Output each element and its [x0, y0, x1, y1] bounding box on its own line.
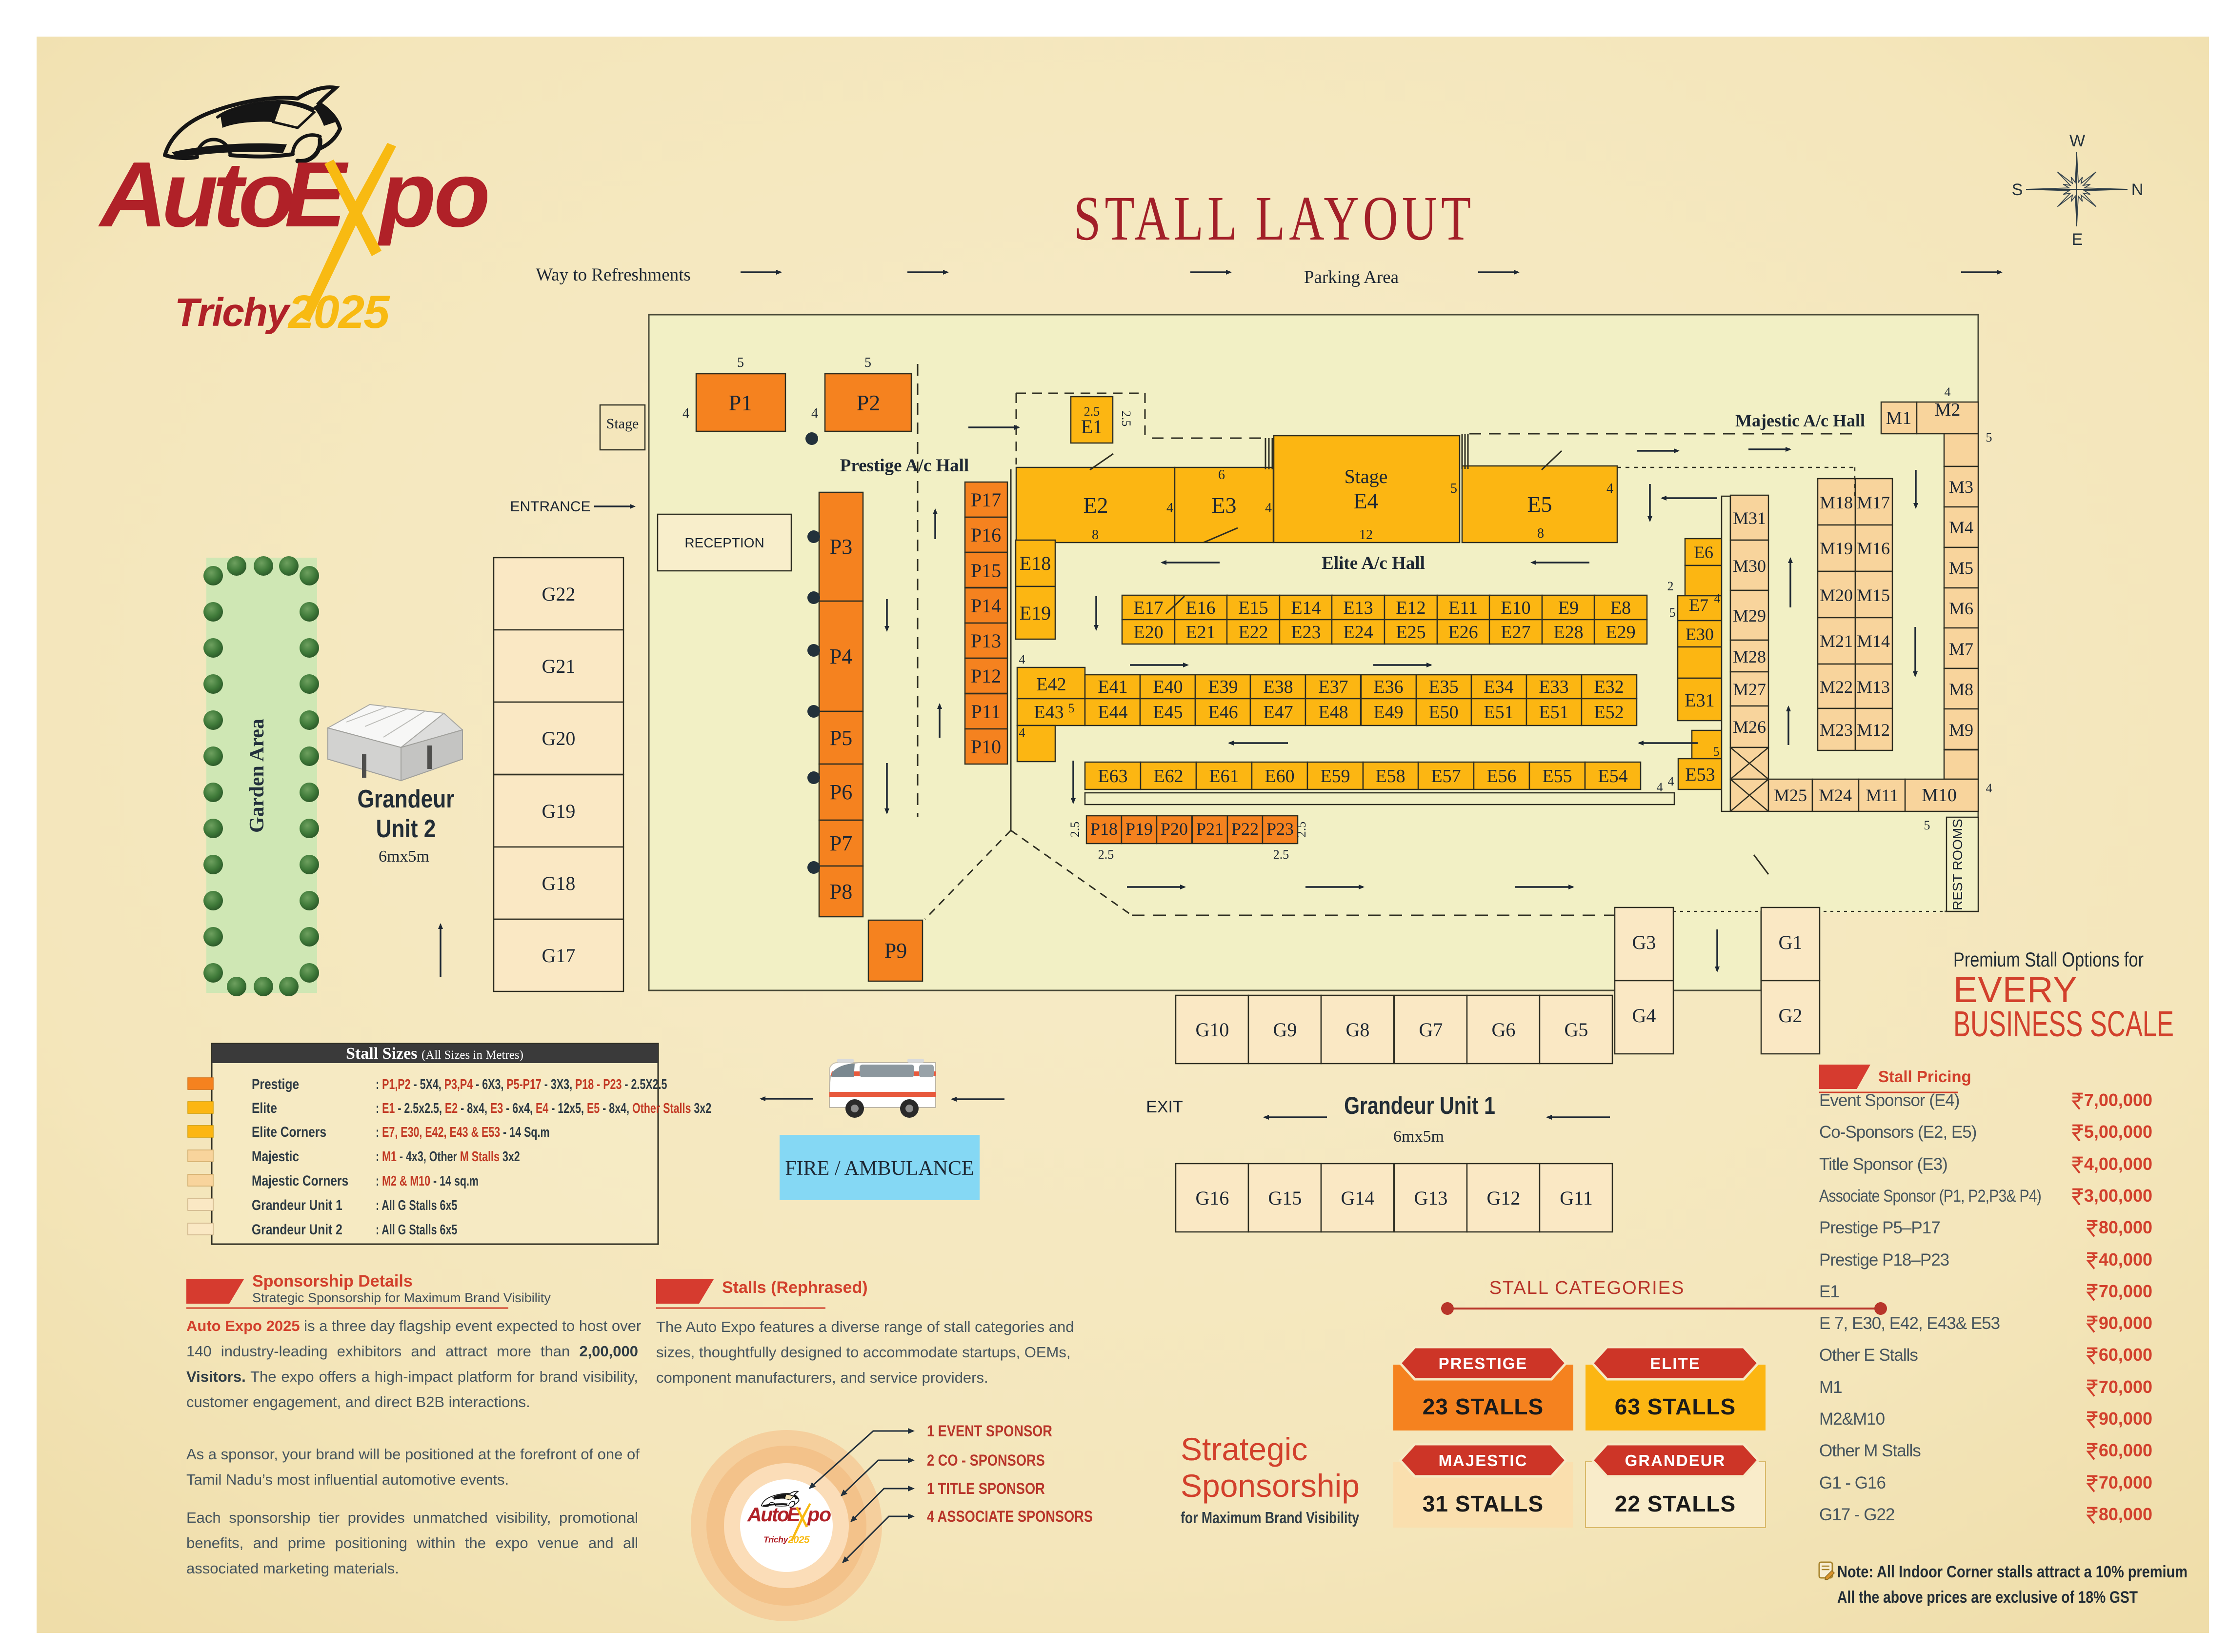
- svg-text:Strategic: Strategic: [1181, 1431, 1307, 1467]
- svg-text:2025: 2025: [287, 286, 390, 338]
- svg-text:Other M Stalls: Other M Stalls: [1819, 1441, 1921, 1460]
- svg-text:5: 5: [864, 355, 871, 370]
- svg-text:80,000: 80,000: [2099, 1217, 2152, 1237]
- svg-text:Elite Corners: Elite Corners: [252, 1124, 326, 1140]
- svg-text:G17: G17: [542, 945, 576, 967]
- svg-text:E 7, E30, E42, E43& E53: E 7, E30, E42, E43& E53: [1819, 1314, 2000, 1333]
- svg-text:M30: M30: [1733, 556, 1766, 576]
- svg-text:P1: P1: [729, 390, 753, 415]
- svg-text:4: 4: [682, 406, 689, 421]
- svg-text:3,00,000: 3,00,000: [2084, 1186, 2152, 1206]
- svg-text:Majestic Corners: Majestic Corners: [252, 1172, 348, 1189]
- svg-text:4: 4: [1265, 501, 1272, 516]
- svg-text:Note: All Indoor Corner stalls: Note: All Indoor Corner stalls attract a…: [1837, 1563, 2188, 1581]
- svg-text:M8: M8: [1949, 680, 1973, 699]
- svg-text:G9: G9: [1273, 1019, 1297, 1041]
- svg-text:M29: M29: [1733, 606, 1766, 625]
- svg-text:P10: P10: [971, 736, 1001, 758]
- svg-text:: M1 - 4x3, Other M Stalls 3x: : M1 - 4x3, Other M Stalls 3x2: [376, 1149, 520, 1165]
- svg-text:90,000: 90,000: [2099, 1409, 2152, 1429]
- svg-text:E57: E57: [1431, 766, 1461, 786]
- svg-text:EXIT: EXIT: [1146, 1098, 1183, 1116]
- svg-text:P11: P11: [971, 701, 1001, 723]
- svg-text:90,000: 90,000: [2099, 1313, 2152, 1333]
- svg-text:ELITE: ELITE: [1650, 1354, 1701, 1372]
- svg-text:70,000: 70,000: [2099, 1472, 2152, 1492]
- svg-text:G3: G3: [1632, 931, 1656, 953]
- svg-text:E20: E20: [1133, 622, 1163, 643]
- svg-text:Event Sponsor (E4): Event Sponsor (E4): [1819, 1091, 1959, 1110]
- svg-text:M21: M21: [1820, 631, 1853, 651]
- svg-text:Stall Pricing: Stall Pricing: [1878, 1068, 1971, 1086]
- svg-text:6mx5m: 6mx5m: [379, 847, 429, 866]
- svg-text:M25: M25: [1774, 786, 1807, 805]
- svg-text:E36: E36: [1373, 677, 1403, 697]
- svg-text:1 EVENT SPONSOR: 1 EVENT SPONSOR: [927, 1423, 1052, 1440]
- svg-text:1 TITLE SPONSOR: 1 TITLE SPONSOR: [927, 1480, 1045, 1498]
- svg-text:2.5: 2.5: [1294, 822, 1308, 838]
- svg-text:E18: E18: [1020, 552, 1051, 574]
- svg-text:E27: E27: [1501, 622, 1530, 643]
- svg-text:M18: M18: [1820, 493, 1853, 512]
- svg-text:2.5: 2.5: [1098, 847, 1114, 862]
- svg-text:Other E Stalls: Other E Stalls: [1819, 1346, 1918, 1365]
- svg-text:E14: E14: [1291, 598, 1321, 618]
- svg-text:M24: M24: [1819, 786, 1852, 805]
- svg-text:E43: E43: [1034, 702, 1064, 723]
- svg-text:G16: G16: [1196, 1187, 1229, 1209]
- svg-text:G17 - G22: G17 - G22: [1819, 1505, 1894, 1524]
- svg-text:70,000: 70,000: [2099, 1281, 2152, 1301]
- svg-text:M31: M31: [1733, 508, 1766, 528]
- svg-text:Sponsorship: Sponsorship: [1181, 1468, 1360, 1504]
- svg-text:G13: G13: [1414, 1187, 1448, 1209]
- svg-text:G18: G18: [542, 872, 576, 894]
- svg-text:E34: E34: [1484, 677, 1513, 697]
- svg-text:Prestige P5–P17: Prestige P5–P17: [1819, 1218, 1940, 1237]
- svg-text:P8: P8: [830, 880, 852, 904]
- svg-text:E55: E55: [1542, 766, 1572, 786]
- svg-text:E54: E54: [1598, 766, 1627, 786]
- svg-text:Associate Sponsor (P1, P2,P3&: Associate Sponsor (P1, P2,P3& P4): [1819, 1187, 2041, 1206]
- svg-text:E16: E16: [1185, 598, 1215, 618]
- svg-text:G14: G14: [1341, 1187, 1375, 1209]
- svg-text:E22: E22: [1238, 622, 1268, 643]
- svg-text:G11: G11: [1560, 1187, 1592, 1209]
- svg-text:G6: G6: [1492, 1019, 1516, 1041]
- svg-text:E17: E17: [1133, 598, 1163, 618]
- svg-text:M2: M2: [1935, 400, 1961, 420]
- svg-text:Prestige: Prestige: [252, 1076, 299, 1092]
- svg-text:Grandeur Unit 1: Grandeur Unit 1: [1344, 1092, 1495, 1119]
- svg-text:FIRE / AMBULANCE: FIRE / AMBULANCE: [785, 1157, 974, 1180]
- svg-text:P16: P16: [971, 524, 1001, 546]
- svg-text:S: S: [2012, 181, 2023, 199]
- svg-text:2.5: 2.5: [1068, 822, 1082, 838]
- svg-text:Stage: Stage: [1345, 465, 1388, 487]
- svg-text:E42: E42: [1036, 674, 1066, 695]
- svg-text:E21: E21: [1185, 622, 1215, 643]
- svg-text:E58: E58: [1375, 766, 1405, 786]
- svg-text:P2: P2: [857, 390, 881, 415]
- svg-text:Unit 2: Unit 2: [376, 815, 436, 843]
- svg-text:M11: M11: [1866, 786, 1899, 805]
- svg-text:7,00,000: 7,00,000: [2084, 1090, 2152, 1110]
- svg-text:E33: E33: [1539, 677, 1568, 697]
- svg-text:5: 5: [1068, 701, 1075, 715]
- svg-text:Grandeur Unit 2: Grandeur Unit 2: [252, 1221, 342, 1238]
- svg-text:4: 4: [1986, 781, 1992, 795]
- svg-text:Grandeur Unit 1: Grandeur Unit 1: [252, 1197, 342, 1213]
- svg-text:4,00,000: 4,00,000: [2084, 1154, 2152, 1174]
- svg-text:8: 8: [1537, 526, 1544, 541]
- svg-text:P7: P7: [830, 831, 852, 855]
- svg-text:M4: M4: [1949, 518, 1973, 537]
- svg-text:40,000: 40,000: [2099, 1249, 2152, 1269]
- svg-text:E35: E35: [1428, 677, 1458, 697]
- svg-text:BUSINESS SCALE: BUSINESS SCALE: [1953, 1004, 2174, 1044]
- svg-text:E11: E11: [1448, 598, 1478, 618]
- svg-text:G2: G2: [1779, 1005, 1803, 1027]
- svg-text:N: N: [2131, 181, 2144, 199]
- svg-text:All the above prices are exclu: All the above prices are exclusive of 18…: [1837, 1588, 2138, 1607]
- svg-text:E51: E51: [1539, 702, 1568, 723]
- svg-text:: All G Stalls 6x5: : All G Stalls 6x5: [376, 1198, 457, 1213]
- svg-text:G1: G1: [1779, 931, 1803, 953]
- svg-text:M28: M28: [1733, 647, 1766, 666]
- svg-text:23 STALLS: 23 STALLS: [1423, 1394, 1544, 1419]
- svg-text:P12: P12: [971, 665, 1001, 687]
- svg-text:E41: E41: [1098, 677, 1127, 697]
- svg-text:P20: P20: [1161, 819, 1188, 839]
- svg-text:M9: M9: [1949, 720, 1973, 740]
- svg-text:Way to Refreshments: Way to Refreshments: [536, 265, 691, 285]
- svg-text:M1: M1: [1819, 1378, 1842, 1397]
- svg-text:Premium Stall Options for: Premium Stall Options for: [1953, 948, 2144, 971]
- svg-text:G1 - G16: G1 - G16: [1819, 1473, 1886, 1492]
- svg-text:STALL CATEGORIES: STALL CATEGORIES: [1489, 1278, 1685, 1298]
- svg-text:for Maximum Brand Visibility: for Maximum Brand Visibility: [1181, 1509, 1360, 1527]
- svg-text:60,000: 60,000: [2099, 1345, 2152, 1365]
- svg-text:: M2 & M10 - 14 sq.m: : M2 & M10 - 14 sq.m: [376, 1173, 479, 1189]
- svg-text:M26: M26: [1733, 717, 1766, 737]
- svg-text:E30: E30: [1686, 625, 1714, 644]
- svg-text:E: E: [284, 143, 349, 246]
- svg-text:6mx5m: 6mx5m: [1393, 1128, 1444, 1146]
- svg-text:P3: P3: [830, 535, 852, 559]
- svg-text:: E1 - 2.5x2.5, E2 - 8x4, E3: : E1 - 2.5x2.5, E2 - 8x4, E3 - 6x4, E4 -…: [376, 1101, 711, 1116]
- svg-text:E45: E45: [1153, 702, 1183, 723]
- svg-text:E25: E25: [1396, 622, 1425, 643]
- svg-text:E60: E60: [1265, 766, 1294, 786]
- svg-text:M1: M1: [1886, 408, 1912, 428]
- svg-text:4: 4: [811, 406, 818, 421]
- svg-text:E46: E46: [1208, 702, 1238, 723]
- svg-text:E40: E40: [1153, 677, 1183, 697]
- svg-text:E1: E1: [1081, 416, 1103, 438]
- svg-text:: P1,P2 - 5X4, P3,P4 - 6X3, P: : P1,P2 - 5X4, P3,P4 - 6X3, P5-P17 - 3X3…: [376, 1077, 667, 1092]
- svg-text:M7: M7: [1949, 639, 1973, 659]
- svg-text:5: 5: [1713, 745, 1720, 759]
- svg-text:E4: E4: [1353, 488, 1378, 513]
- svg-text:4: 4: [1606, 481, 1613, 496]
- svg-text:E38: E38: [1263, 677, 1293, 697]
- svg-text:E37: E37: [1318, 677, 1348, 697]
- svg-text:M14: M14: [1857, 631, 1890, 651]
- svg-text:E5: E5: [1527, 492, 1552, 517]
- svg-text:Elite A/c Hall: Elite A/c Hall: [1322, 553, 1425, 573]
- svg-text:P14: P14: [971, 595, 1001, 617]
- svg-text:70,000: 70,000: [2099, 1377, 2152, 1397]
- svg-text:G8: G8: [1346, 1019, 1370, 1041]
- svg-text:M20: M20: [1820, 585, 1853, 605]
- svg-text:P15: P15: [971, 560, 1001, 582]
- svg-text:5: 5: [1669, 605, 1676, 620]
- svg-text:P19: P19: [1125, 819, 1153, 839]
- svg-text:E63: E63: [1098, 766, 1127, 786]
- svg-text:Stalls (Rephrased): Stalls (Rephrased): [722, 1278, 868, 1297]
- svg-text:P6: P6: [830, 780, 852, 804]
- svg-text:E53: E53: [1685, 765, 1715, 785]
- svg-text:60,000: 60,000: [2099, 1440, 2152, 1460]
- svg-text:Parking Area: Parking Area: [1304, 267, 1399, 287]
- svg-text:Sponsorship Details: Sponsorship Details: [252, 1272, 413, 1290]
- svg-text:2.5: 2.5: [1119, 411, 1133, 427]
- svg-text:M22: M22: [1820, 677, 1853, 697]
- svg-text:P13: P13: [971, 630, 1001, 652]
- svg-text:12: 12: [1359, 527, 1373, 543]
- svg-text:E32: E32: [1594, 677, 1624, 697]
- svg-text:Auto: Auto: [98, 143, 292, 246]
- svg-text:RECEPTION: RECEPTION: [684, 535, 764, 550]
- svg-text:G4: G4: [1632, 1005, 1656, 1027]
- svg-text:M23: M23: [1820, 720, 1853, 740]
- svg-text:M17: M17: [1857, 493, 1890, 512]
- svg-text:Strategic Sponsorship for Maxi: Strategic Sponsorship for Maximum Brand …: [252, 1290, 551, 1305]
- svg-text:G10: G10: [1196, 1019, 1229, 1041]
- svg-text:E31: E31: [1685, 690, 1714, 711]
- svg-text:M3: M3: [1949, 477, 1973, 497]
- svg-text:E15: E15: [1238, 598, 1268, 618]
- svg-text:5: 5: [737, 355, 744, 370]
- svg-text:STALL LAYOUT: STALL LAYOUT: [1074, 184, 1475, 254]
- svg-text:Elite: Elite: [252, 1100, 277, 1116]
- svg-text:: E7, E30, E42, E43 & E53 - 1: : E7, E30, E42, E43 & E53 - 14 Sq.m: [376, 1125, 550, 1140]
- svg-text:ENTRANCE: ENTRANCE: [510, 499, 590, 515]
- svg-text:G7: G7: [1419, 1019, 1443, 1041]
- svg-text:E3: E3: [1211, 493, 1236, 518]
- svg-text:5,00,000: 5,00,000: [2084, 1122, 2152, 1142]
- svg-text:G22: G22: [542, 583, 576, 605]
- svg-text:5: 5: [1924, 818, 1930, 832]
- svg-text:P22: P22: [1231, 819, 1259, 839]
- svg-text:Co-Sponsors (E2, E5): Co-Sponsors (E2, E5): [1819, 1123, 1976, 1142]
- svg-text:E61: E61: [1209, 766, 1239, 786]
- svg-text:E13: E13: [1343, 598, 1373, 618]
- svg-text:Grandeur: Grandeur: [358, 785, 455, 813]
- svg-text:P9: P9: [884, 939, 907, 963]
- svg-text:MAJESTIC: MAJESTIC: [1439, 1451, 1528, 1470]
- svg-text:4: 4: [1166, 501, 1173, 516]
- svg-text:4 ASSOCIATE SPONSORS: 4 ASSOCIATE SPONSORS: [927, 1508, 1093, 1526]
- svg-text:E23: E23: [1291, 622, 1321, 643]
- svg-text:E59: E59: [1320, 766, 1350, 786]
- svg-text:2.5: 2.5: [1084, 404, 1100, 419]
- svg-text:E9: E9: [1558, 598, 1579, 618]
- svg-text:P4: P4: [830, 645, 852, 668]
- svg-text:2.5: 2.5: [1273, 847, 1289, 862]
- svg-text:G20: G20: [542, 727, 576, 749]
- svg-text:E6: E6: [1694, 543, 1713, 562]
- svg-text:G12: G12: [1487, 1187, 1521, 1209]
- svg-text:E: E: [2072, 230, 2083, 249]
- svg-text:PRESTIGE: PRESTIGE: [1439, 1354, 1528, 1372]
- svg-text:P18: P18: [1090, 819, 1118, 839]
- svg-text:Stage: Stage: [606, 416, 639, 432]
- svg-text:G15: G15: [1268, 1187, 1302, 1209]
- svg-text:GRANDEUR: GRANDEUR: [1625, 1451, 1726, 1470]
- svg-text:M19: M19: [1820, 539, 1853, 558]
- svg-text:31 STALLS: 31 STALLS: [1423, 1491, 1544, 1516]
- svg-text:M12: M12: [1857, 720, 1890, 740]
- svg-text:E39: E39: [1208, 677, 1238, 697]
- svg-text:M5: M5: [1949, 558, 1973, 578]
- svg-text:M13: M13: [1857, 677, 1890, 697]
- svg-text:Garden Area: Garden Area: [246, 719, 268, 833]
- svg-text:E12: E12: [1396, 598, 1425, 618]
- svg-text:63 STALLS: 63 STALLS: [1615, 1394, 1736, 1419]
- svg-text:: All G Stalls 6x5: : All G Stalls 6x5: [376, 1222, 457, 1238]
- svg-text:22 STALLS: 22 STALLS: [1615, 1491, 1736, 1516]
- svg-text:4: 4: [1668, 774, 1674, 788]
- svg-text:Title Sponsor (E3): Title Sponsor (E3): [1819, 1155, 1947, 1174]
- svg-text:4: 4: [1019, 652, 1025, 666]
- svg-text:P23: P23: [1266, 819, 1294, 839]
- svg-text:4: 4: [1714, 591, 1721, 605]
- svg-text:8: 8: [1092, 527, 1099, 543]
- svg-text:W: W: [2069, 132, 2085, 150]
- svg-text:E49: E49: [1373, 702, 1403, 723]
- svg-text:6: 6: [1218, 467, 1225, 483]
- svg-text:M16: M16: [1857, 539, 1890, 558]
- svg-text:E52: E52: [1594, 702, 1624, 723]
- svg-text:P5: P5: [830, 726, 852, 750]
- svg-text:Prestige P18–P23: Prestige P18–P23: [1819, 1250, 1949, 1269]
- svg-text:E44: E44: [1098, 702, 1127, 723]
- svg-text:E1: E1: [1819, 1282, 1839, 1301]
- svg-text:Trichy: Trichy: [175, 290, 291, 335]
- svg-text:M15: M15: [1857, 585, 1890, 605]
- svg-text:5: 5: [1986, 430, 1992, 444]
- svg-text:E29: E29: [1606, 622, 1635, 643]
- svg-text:E47: E47: [1263, 702, 1293, 723]
- svg-text:E48: E48: [1318, 702, 1348, 723]
- svg-text:4: 4: [1657, 780, 1663, 794]
- svg-text:P21: P21: [1196, 819, 1224, 839]
- svg-text:80,000: 80,000: [2099, 1504, 2152, 1524]
- svg-text:E8: E8: [1610, 598, 1631, 618]
- svg-text:M2&M10: M2&M10: [1819, 1410, 1885, 1429]
- svg-text:P17: P17: [971, 489, 1001, 511]
- svg-text:po: po: [377, 143, 488, 246]
- svg-text:E56: E56: [1486, 766, 1516, 786]
- svg-text:2: 2: [1667, 579, 1674, 593]
- svg-text:E2: E2: [1083, 493, 1108, 518]
- svg-text:5: 5: [1450, 481, 1457, 496]
- svg-text:E28: E28: [1553, 622, 1583, 643]
- svg-text:E7: E7: [1689, 595, 1708, 615]
- svg-text:E62: E62: [1153, 766, 1183, 786]
- svg-text:E24: E24: [1343, 622, 1373, 643]
- svg-text:Majestic A/c Hall: Majestic A/c Hall: [1735, 411, 1865, 430]
- svg-text:4: 4: [1945, 385, 1951, 399]
- svg-text:E26: E26: [1448, 622, 1478, 643]
- svg-text:M27: M27: [1733, 680, 1766, 699]
- svg-text:2 CO - SPONSORS: 2 CO - SPONSORS: [927, 1452, 1045, 1470]
- svg-text:E19: E19: [1020, 602, 1051, 624]
- svg-text:Prestige A/c Hall: Prestige A/c Hall: [840, 456, 969, 476]
- svg-text:4: 4: [1019, 725, 1025, 740]
- svg-text:G19: G19: [542, 800, 576, 822]
- svg-text:G21: G21: [542, 655, 576, 677]
- svg-text:REST ROOMS: REST ROOMS: [1950, 819, 1965, 910]
- svg-text:Majestic: Majestic: [252, 1148, 299, 1165]
- svg-text:E10: E10: [1501, 598, 1530, 618]
- svg-text:M6: M6: [1949, 599, 1973, 618]
- svg-text:G5: G5: [1565, 1019, 1588, 1041]
- svg-text:E51: E51: [1484, 702, 1513, 723]
- svg-text:E50: E50: [1428, 702, 1458, 723]
- svg-text:M10: M10: [1922, 785, 1957, 806]
